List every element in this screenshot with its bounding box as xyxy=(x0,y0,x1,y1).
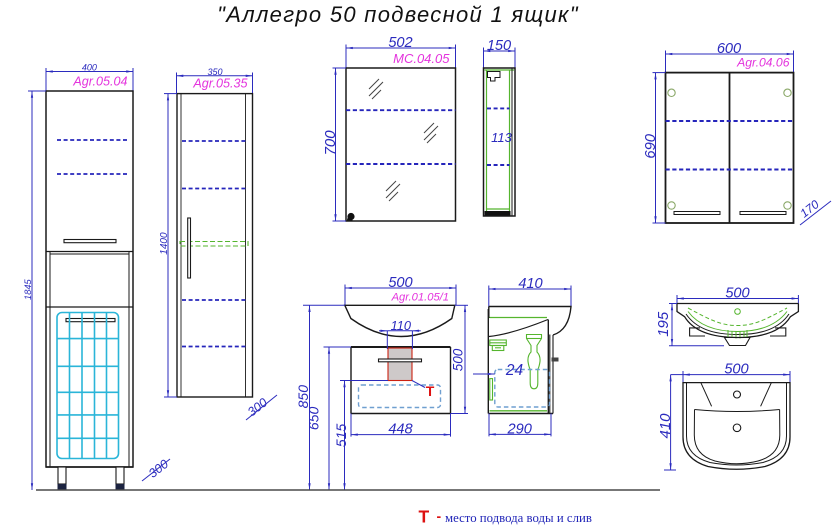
svg-text:113: 113 xyxy=(491,130,512,145)
svg-text:690: 690 xyxy=(643,133,659,158)
svg-text:110: 110 xyxy=(391,318,412,333)
svg-text:24: 24 xyxy=(505,362,524,379)
svg-text:Agr.01.05/1: Agr.01.05/1 xyxy=(391,292,449,304)
svg-text:195: 195 xyxy=(656,311,672,337)
svg-text:Agr.05.35: Agr.05.35 xyxy=(192,77,248,91)
svg-text:"Аллегро 50 подвесной 1 ящик": "Аллегро 50 подвесной 1 ящик" xyxy=(217,2,579,27)
svg-text:500: 500 xyxy=(451,348,466,371)
svg-text:Т: Т xyxy=(419,507,430,527)
svg-text:Т: Т xyxy=(426,383,435,399)
svg-text:150: 150 xyxy=(487,38,511,54)
svg-text:350: 350 xyxy=(207,67,222,77)
svg-text:400: 400 xyxy=(82,63,97,73)
svg-text:500: 500 xyxy=(388,275,412,291)
svg-text:500: 500 xyxy=(724,362,748,378)
svg-text:410: 410 xyxy=(657,413,674,439)
svg-text:448: 448 xyxy=(388,422,413,438)
svg-text:650: 650 xyxy=(306,407,322,431)
svg-text:Agr.04.06: Agr.04.06 xyxy=(736,55,790,69)
svg-text:МС.04.05: МС.04.05 xyxy=(393,51,450,66)
svg-text:502: 502 xyxy=(388,35,412,51)
svg-text:500: 500 xyxy=(725,286,749,302)
svg-text:-: - xyxy=(437,508,442,524)
svg-text:место подвода воды и слив: место подвода воды и слив xyxy=(445,511,592,525)
svg-text:700: 700 xyxy=(322,130,339,156)
svg-text:850: 850 xyxy=(295,385,311,409)
svg-text:290: 290 xyxy=(507,422,532,438)
svg-text:1845: 1845 xyxy=(23,278,33,300)
svg-text:515: 515 xyxy=(333,424,349,448)
svg-text:Agr.05.04: Agr.05.04 xyxy=(72,74,127,88)
svg-text:1400: 1400 xyxy=(159,232,170,255)
svg-text:410: 410 xyxy=(518,276,542,292)
